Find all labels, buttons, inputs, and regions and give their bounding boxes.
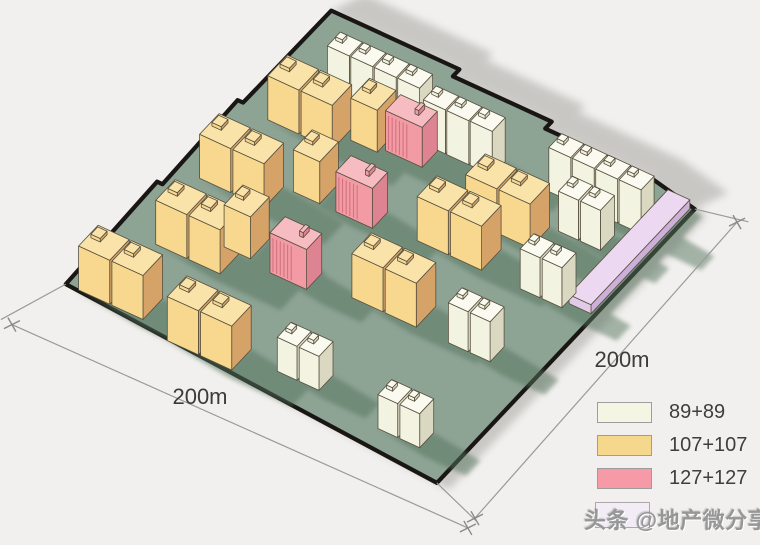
extension-line (1, 284, 66, 319)
dimension-label-right: 200m (594, 347, 649, 372)
legend-label-89-89: 89+89 (669, 401, 725, 424)
dimension-tick (464, 521, 472, 535)
legend-swatch-89-89 (597, 402, 652, 423)
dimension-tick (471, 511, 479, 525)
watermark: 头条 @地产微分享 (584, 503, 760, 535)
legend-swatch-127-127 (597, 468, 652, 489)
legend: 89+89 107+107 127+127 (597, 402, 747, 501)
legend-label-107-107: 107+107 (669, 434, 747, 457)
legend-item-127-127: 127+127 (597, 468, 747, 489)
legend-item-107-107: 107+107 (597, 435, 747, 456)
site-plan-figure: 200m 200m 89+89 107+107 127+127 头条 @地产微分… (0, 0, 760, 545)
dimension-label-bottom: 200m (172, 384, 227, 409)
legend-item-89-89: 89+89 (597, 402, 747, 423)
legend-swatch-107-107 (597, 435, 652, 456)
dimension-tick (733, 215, 741, 229)
extension-line (437, 483, 477, 521)
dimension-tick (8, 318, 16, 332)
legend-label-127-127: 127+127 (669, 467, 747, 490)
